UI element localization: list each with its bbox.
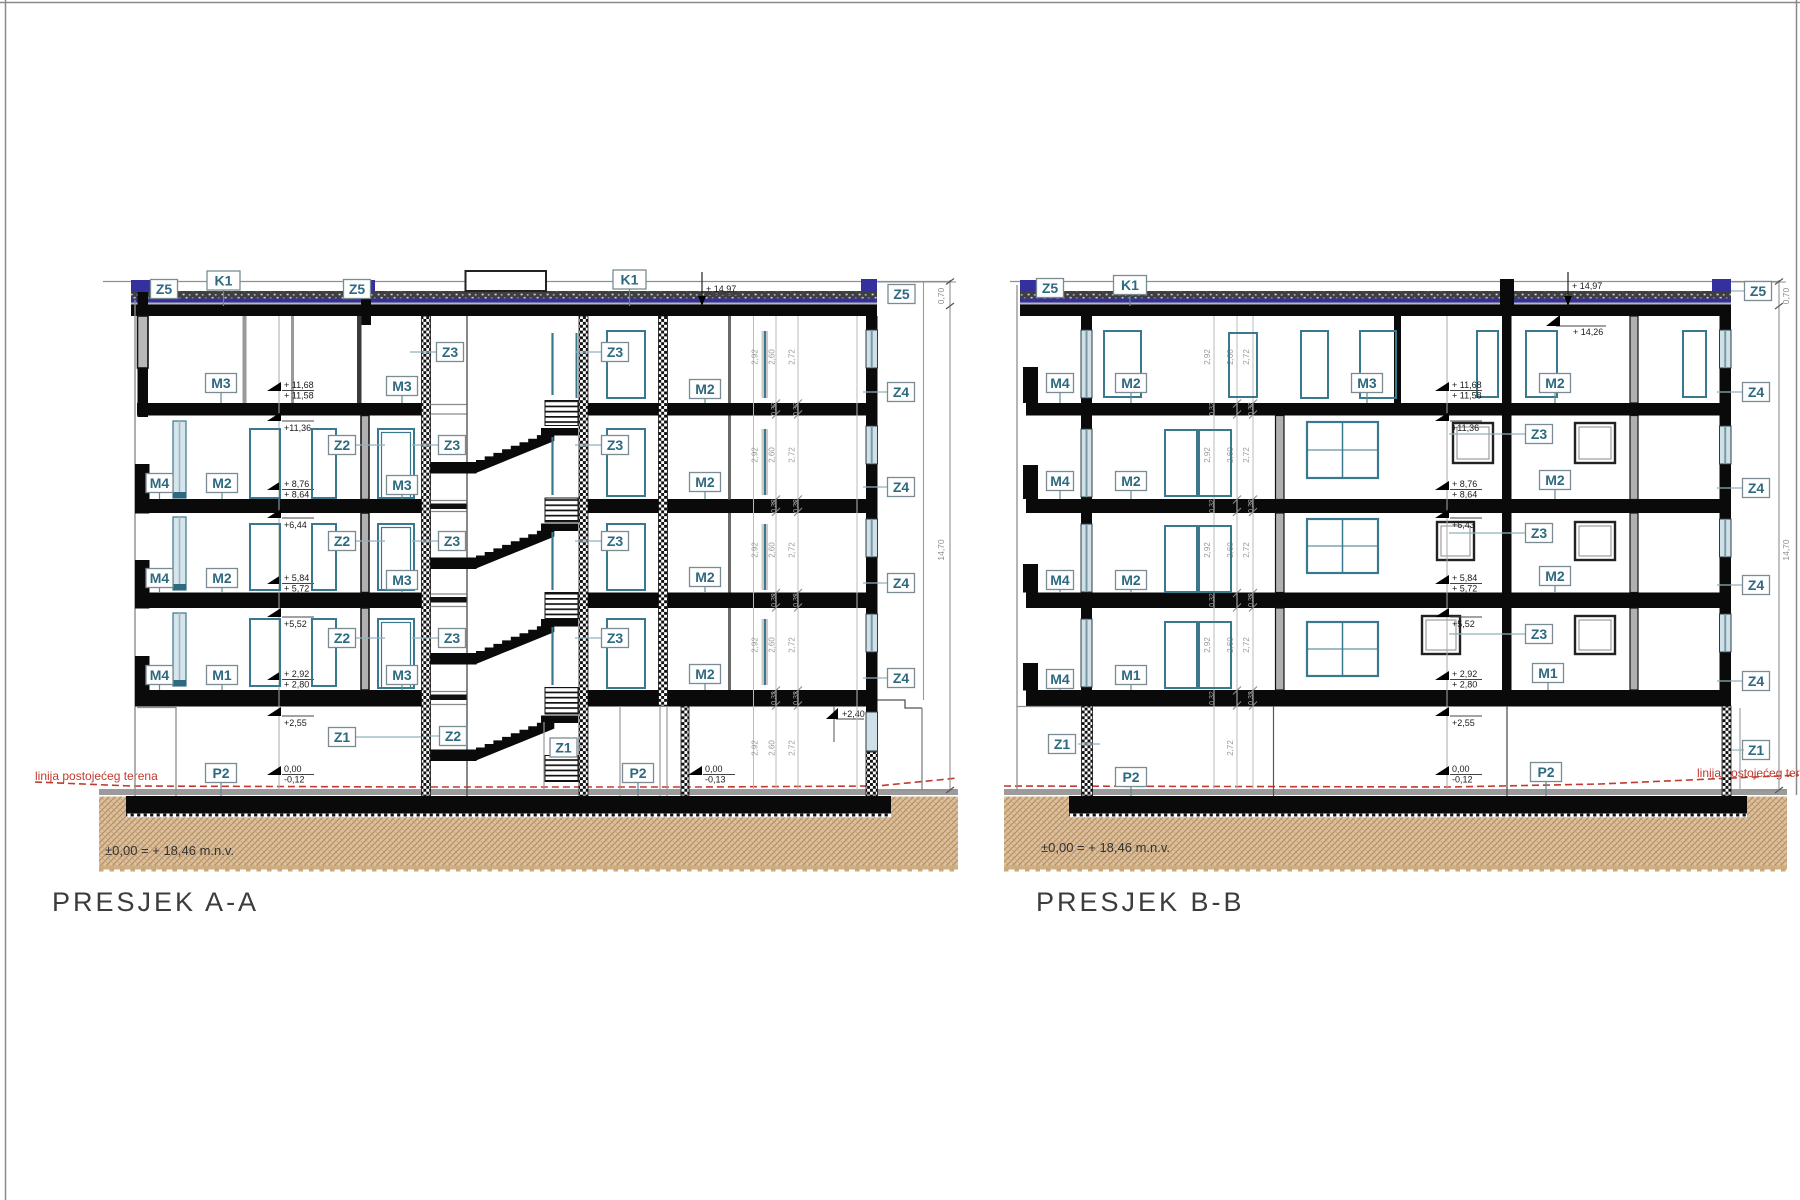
svg-text:+ 11,68: + 11,68 [284,380,314,390]
svg-text:0,32: 0,32 [793,691,800,705]
svg-text:+ 11,58: + 11,58 [1452,391,1482,401]
svg-text:M2: M2 [695,569,715,585]
svg-text:M2: M2 [695,474,715,490]
svg-text:M4: M4 [150,570,170,586]
svg-text:±0,00 = + 18,46 m.n.v.: ±0,00 = + 18,46 m.n.v. [105,843,234,858]
svg-text:+6,43: +6,43 [1452,520,1475,530]
svg-text:0,32: 0,32 [793,402,800,416]
svg-text:M1: M1 [1538,665,1558,681]
svg-text:0,70: 0,70 [1781,287,1791,304]
svg-text:Z3: Z3 [444,437,461,453]
svg-text:0,32: 0,32 [771,691,778,705]
svg-text:M4: M4 [150,475,170,491]
svg-text:2,92: 2,92 [1203,637,1212,653]
svg-text:±0,00 = + 18,46 m.n.v.: ±0,00 = + 18,46 m.n.v. [1041,840,1170,855]
svg-text:2,92: 2,92 [1203,447,1212,463]
svg-text:Z1: Z1 [555,740,572,756]
svg-text:+ 14,97: + 14,97 [706,284,736,294]
svg-text:+ 11,58: + 11,58 [284,391,314,401]
svg-text:M2: M2 [1545,568,1565,584]
svg-text:0,32: 0,32 [793,499,800,513]
svg-text:2,72: 2,72 [1242,349,1251,365]
svg-text:Z3: Z3 [444,630,461,646]
svg-text:2,92: 2,92 [1203,542,1212,558]
svg-text:Z2: Z2 [334,533,351,549]
svg-text:Z2: Z2 [445,728,462,744]
svg-text:Z5: Z5 [1042,280,1059,296]
svg-text:2,72: 2,72 [1226,740,1235,756]
svg-text:2,92: 2,92 [751,740,760,756]
svg-text:M4: M4 [1050,671,1070,687]
svg-text:+5,52: +5,52 [1452,619,1475,629]
svg-text:2,72: 2,72 [788,637,797,653]
svg-text:Z3: Z3 [607,437,624,453]
svg-text:M4: M4 [150,667,170,683]
svg-text:M2: M2 [212,475,232,491]
svg-text:+ 2,80: + 2,80 [1452,680,1477,690]
svg-text:2,72: 2,72 [1242,447,1251,463]
svg-text:Z3: Z3 [607,630,624,646]
svg-text:+11,36: +11,36 [1452,423,1479,433]
svg-text:Z4: Z4 [1748,384,1765,400]
svg-text:K1: K1 [215,273,233,289]
svg-text:2,60: 2,60 [1226,349,1235,365]
svg-text:0,32: 0,32 [1209,499,1216,513]
svg-text:linija postojećeg terena: linija postojećeg terena [35,769,158,783]
svg-text:+11,36: +11,36 [284,423,311,433]
svg-text:2,72: 2,72 [1242,542,1251,558]
svg-text:Z1: Z1 [1748,742,1765,758]
svg-text:P2: P2 [1537,764,1554,780]
svg-text:Z4: Z4 [1748,577,1765,593]
svg-text:14,70: 14,70 [936,539,946,561]
svg-text:P2: P2 [629,765,646,781]
svg-text:PRESJEK A-A: PRESJEK A-A [52,887,259,917]
svg-text:Z3: Z3 [607,533,624,549]
svg-text:+ 14,97: + 14,97 [1572,281,1602,291]
svg-text:+ 2,80: + 2,80 [284,680,309,690]
svg-text:M2: M2 [1121,572,1141,588]
svg-text:-0,12: -0,12 [284,775,305,785]
svg-text:M2: M2 [695,666,715,682]
svg-text:-0,13: -0,13 [705,775,726,785]
svg-text:Z3: Z3 [1531,426,1548,442]
svg-text:M1: M1 [1121,667,1141,683]
svg-text:0,32: 0,32 [771,593,778,607]
svg-text:Z5: Z5 [349,281,366,297]
svg-text:2,92: 2,92 [1203,349,1212,365]
svg-text:2,92: 2,92 [751,349,760,365]
svg-text:Z4: Z4 [893,384,910,400]
svg-text:+2,40: +2,40 [842,709,865,719]
svg-text:2,92: 2,92 [751,637,760,653]
svg-text:+ 8,76: + 8,76 [284,479,309,489]
svg-text:Z1: Z1 [334,729,351,745]
svg-text:Z4: Z4 [893,575,910,591]
svg-text:+ 5,84: + 5,84 [284,573,309,583]
svg-text:0,32: 0,32 [771,402,778,416]
svg-text:+ 8,76: + 8,76 [1452,479,1477,489]
svg-text:2,72: 2,72 [788,740,797,756]
svg-text:M3: M3 [392,378,412,394]
svg-text:Z3: Z3 [607,344,624,360]
svg-text:2,92: 2,92 [751,447,760,463]
svg-text:K1: K1 [621,272,639,288]
svg-text:M4: M4 [1050,572,1070,588]
svg-text:0,32: 0,32 [1209,593,1216,607]
svg-text:14,70: 14,70 [1781,539,1791,561]
svg-text:Z3: Z3 [444,533,461,549]
svg-text:Z5: Z5 [1750,283,1767,299]
svg-text:+ 5,72: + 5,72 [284,584,309,594]
svg-text:2,60: 2,60 [768,740,777,756]
svg-text:2,60: 2,60 [768,542,777,558]
svg-text:M2: M2 [1121,473,1141,489]
svg-text:Z3: Z3 [442,344,459,360]
svg-text:PRESJEK B-B: PRESJEK B-B [1036,887,1245,917]
svg-text:M2: M2 [1545,375,1565,391]
svg-text:+ 2,92: + 2,92 [284,669,309,679]
svg-text:+5,52: +5,52 [284,619,307,629]
svg-text:M4: M4 [1050,375,1070,391]
svg-text:0,00: 0,00 [284,764,302,774]
svg-text:K1: K1 [1121,277,1139,293]
svg-text:Z5: Z5 [156,281,173,297]
svg-text:Z3: Z3 [1531,525,1548,541]
svg-text:0,32: 0,32 [1248,691,1255,705]
svg-text:0,32: 0,32 [771,499,778,513]
svg-text:P2: P2 [212,765,229,781]
svg-text:2,72: 2,72 [788,542,797,558]
svg-text:+ 5,72: + 5,72 [1452,584,1477,594]
svg-text:P2: P2 [1122,769,1139,785]
svg-text:+ 2,92: + 2,92 [1452,669,1477,679]
svg-text:2,60: 2,60 [768,349,777,365]
svg-text:2,60: 2,60 [768,447,777,463]
svg-text:0,70: 0,70 [936,287,946,304]
svg-text:+2,55: +2,55 [284,718,307,728]
svg-text:2,92: 2,92 [751,542,760,558]
svg-text:Z2: Z2 [334,630,351,646]
svg-text:Z4: Z4 [1748,480,1765,496]
svg-text:Z1: Z1 [1054,736,1071,752]
svg-text:Z4: Z4 [893,479,910,495]
svg-text:+ 5,84: + 5,84 [1452,573,1477,583]
svg-text:Z4: Z4 [1748,673,1765,689]
svg-text:0,32: 0,32 [1209,402,1216,416]
svg-text:0,00: 0,00 [705,764,723,774]
svg-text:M1: M1 [212,667,232,683]
svg-text:+ 11,68: + 11,68 [1452,380,1482,390]
svg-text:2,72: 2,72 [1242,637,1251,653]
svg-text:+ 14,26: + 14,26 [1573,327,1603,337]
svg-text:M2: M2 [1545,472,1565,488]
svg-text:M2: M2 [212,570,232,586]
svg-text:2,60: 2,60 [768,637,777,653]
svg-text:+6,44: +6,44 [284,520,307,530]
svg-text:0,00: 0,00 [1452,764,1470,774]
svg-text:+2,55: +2,55 [1452,718,1475,728]
svg-text:Z4: Z4 [893,670,910,686]
svg-text:M2: M2 [695,381,715,397]
svg-text:M3: M3 [392,667,412,683]
svg-text:+ 8,64: + 8,64 [1452,490,1477,500]
svg-text:M3: M3 [392,477,412,493]
svg-text:M3: M3 [211,375,231,391]
svg-text:Z5: Z5 [893,286,910,302]
svg-text:2,72: 2,72 [788,447,797,463]
svg-text:+ 8,64: + 8,64 [284,490,309,500]
svg-text:Z2: Z2 [334,437,351,453]
svg-text:M3: M3 [1357,375,1377,391]
svg-text:-0,12: -0,12 [1452,775,1473,785]
svg-text:M2: M2 [1121,375,1141,391]
svg-text:0,32: 0,32 [793,593,800,607]
svg-text:linija postojećeg terena: linija postojećeg terena [1697,766,1800,780]
svg-text:M3: M3 [392,572,412,588]
svg-text:0,32: 0,32 [1209,691,1216,705]
svg-text:2,72: 2,72 [788,349,797,365]
svg-text:M4: M4 [1050,473,1070,489]
svg-text:Z3: Z3 [1531,626,1548,642]
